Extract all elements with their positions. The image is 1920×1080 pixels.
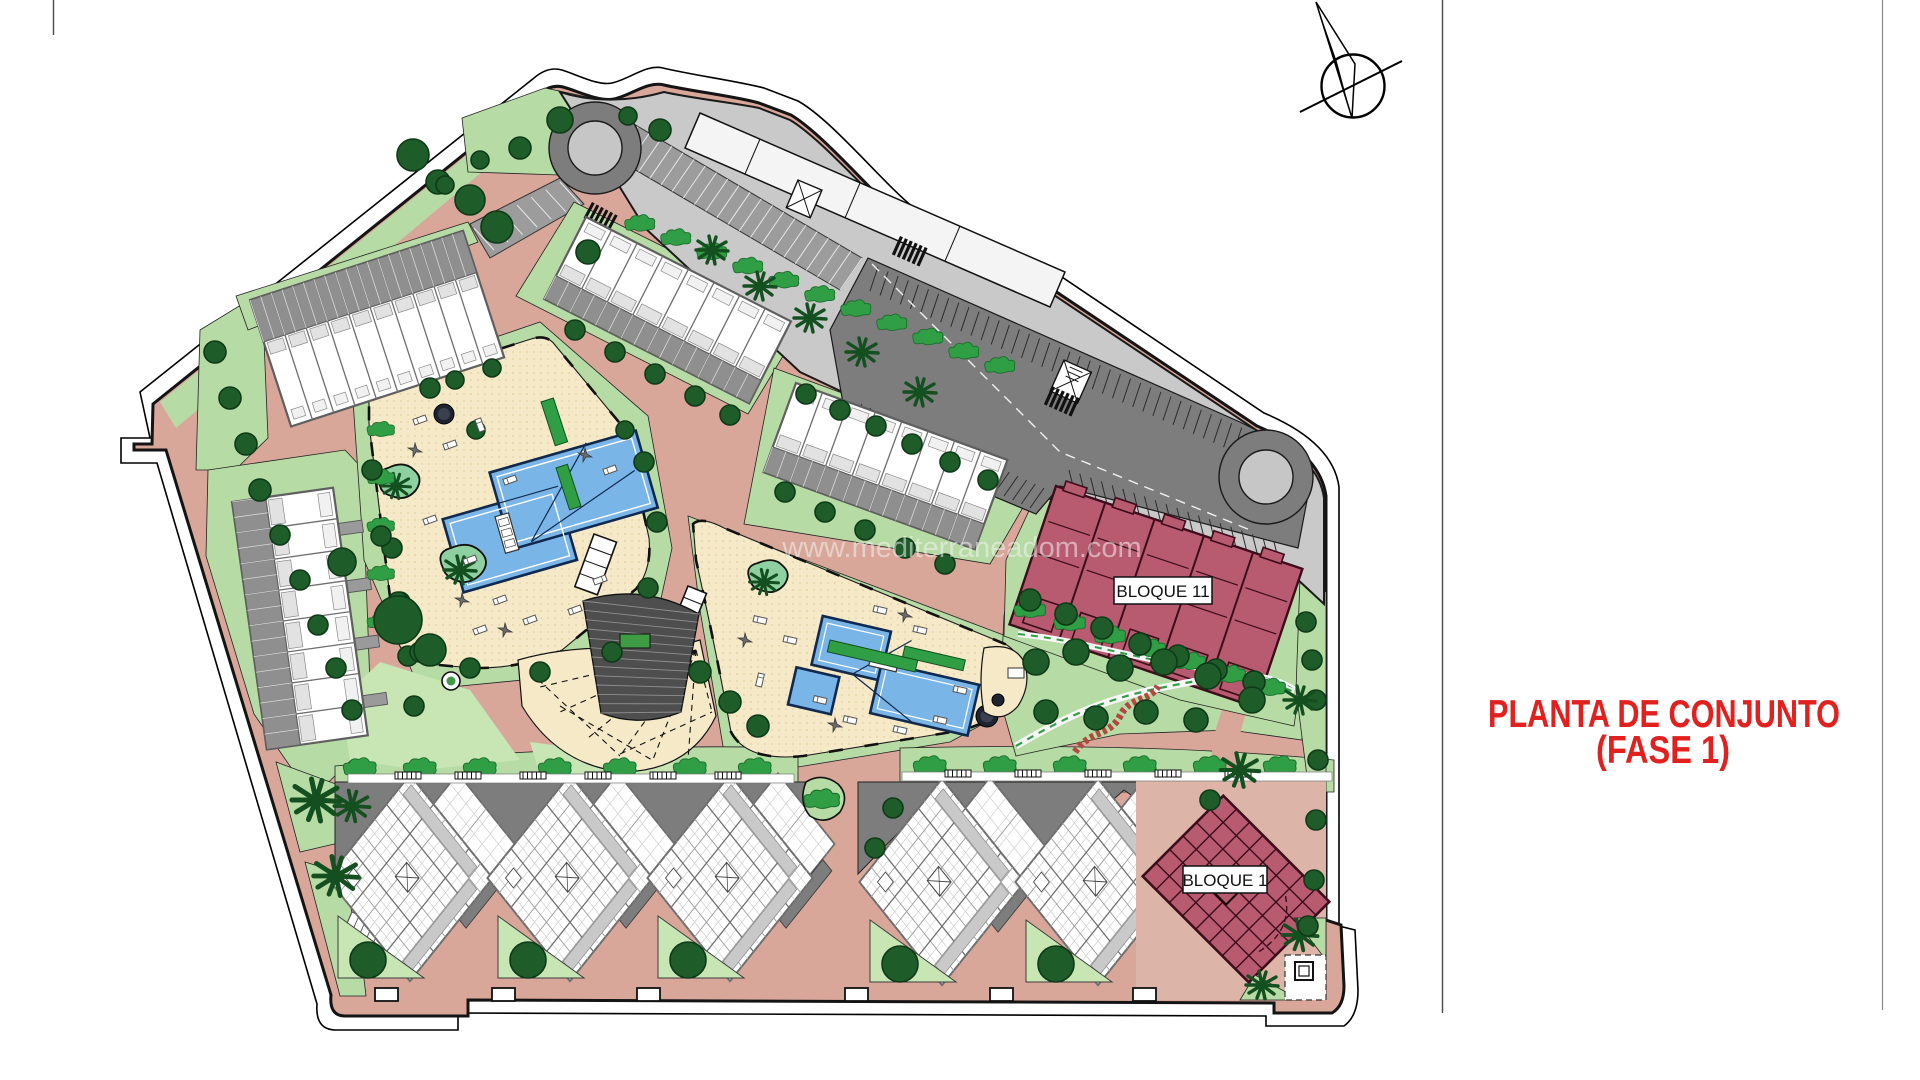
svg-text:(FASE 1): (FASE 1): [1596, 729, 1730, 772]
svg-text:www.mediterraneadom.com: www.mediterraneadom.com: [781, 532, 1141, 564]
svg-text:BLOQUE 1: BLOQUE 1: [1182, 871, 1267, 890]
svg-text:BLOQUE 11: BLOQUE 11: [1116, 582, 1209, 601]
